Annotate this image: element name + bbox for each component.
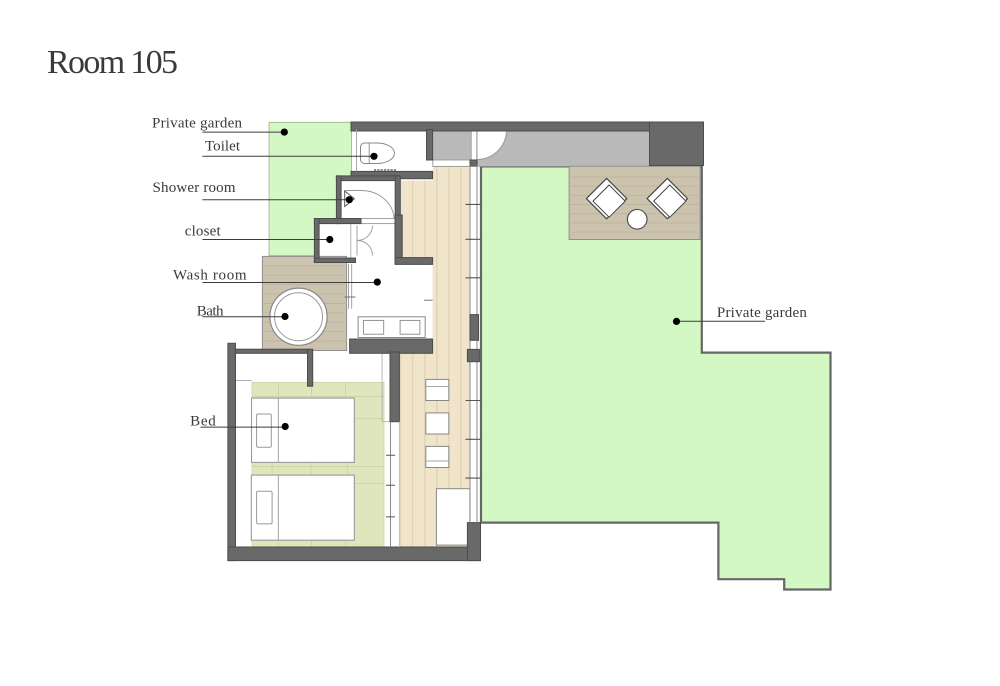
svg-text:Toilet: Toilet [205, 139, 241, 155]
svg-text:closet: closet [185, 224, 222, 240]
svg-text:Private garden: Private garden [717, 305, 808, 321]
svg-text:Wash room: Wash room [173, 268, 247, 284]
svg-text:Room 105: Room 105 [47, 44, 178, 81]
svg-text:Private garden: Private garden [152, 116, 243, 132]
svg-text:Shower room: Shower room [153, 180, 236, 196]
